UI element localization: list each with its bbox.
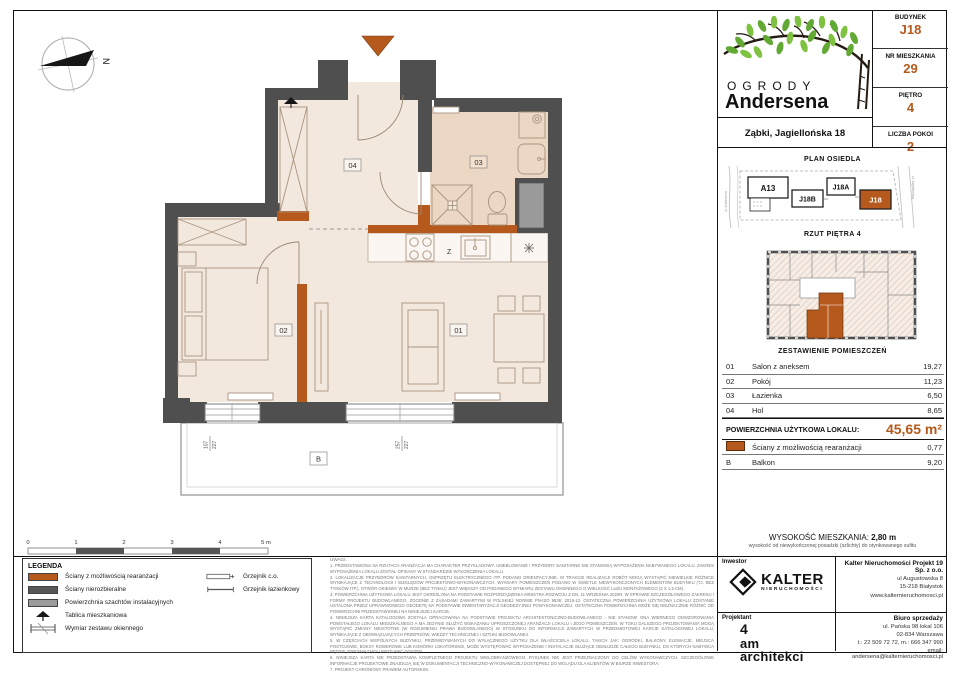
note-item: 6. NINIEJSZA KARTA NIE PRZEDSTAWIA KOMPL… [330,655,714,666]
legend-item: Ściany z możliwością rearanżacji [28,570,201,583]
site-building-a13-label: A13 [761,184,776,193]
rearrangeable-wall-swatch [28,573,58,581]
investor-company: Kalter Nieruchomości Projekt 19 Sp. z o.… [838,560,943,574]
floor-label: PIĘTRO [873,92,948,99]
radiator-bathroom-icon [206,583,236,596]
svg-text:227: 227 [404,440,410,449]
fixed-wall-swatch [28,586,58,594]
kalter-logo-icon [729,568,757,596]
window-room02 [205,404,260,421]
svg-text:0: 0 [26,540,29,546]
legend-item: Grzejnik c.o. [206,570,309,583]
logo-tree: OGRODY Andersena [720,16,870,112]
legend-item: Grzejnik łazienkowy [206,583,309,596]
apartment-number-value: 29 [873,61,948,76]
sales-office-phone: t.: 22 509 72 72, m.: 666 347 990 [838,640,943,646]
notes-title: UWAGI: [330,557,714,562]
note-item: 1. PRZEDSTAWIONA NA RZUTACH ARANŻACJA MA… [330,563,714,574]
table-row: 02 Pokój 11,23 [722,374,944,389]
shaft-area-swatch [28,599,58,607]
svg-text:4: 4 [218,540,222,546]
legend-title: LEGENDA [28,563,311,570]
room-label-bathroom: 03 [474,158,482,167]
street-right-label: ul. Jagiellońska [911,176,915,199]
sales-office-title: Biuro sprzedaży [838,615,943,622]
radiator-co-icon [206,570,236,583]
investor-section-label: Inwestor [722,559,835,565]
room-label-hall: 04 [348,161,356,170]
unit-info-column: BUDYNEK J18 NR MIESZKANIA 29 PIĘTRO 4 LI… [872,10,948,147]
note-item: 5. W CZĘŚCIACH WSPÓLNYCH BUDYNKU, PRZEWI… [330,638,714,655]
window-dim-icon [28,622,58,635]
site-building-j18b-label: J18B [799,197,816,204]
floor-plan-drawing: N [13,10,717,556]
svg-text:107: 107 [204,440,210,449]
note-item: 3. POWIERZCHNIA UŻYTKOWA LOKALU JEST OKR… [330,592,714,614]
kitchen-sink-label: Z [447,249,452,256]
site-plan-title: PLAN OSIEDLA [718,156,947,163]
investor-brand-sub: NIERUCHOMOŚCI [761,587,824,592]
compass-north-label: N [101,58,111,65]
investor-brand: KALTER [761,572,824,587]
catalog-card-page: N [0,0,960,678]
compass-icon: N [38,36,111,92]
sales-office-line: 02-834 Warszawa [838,632,943,638]
designer-cell: Projektant 4 am architekci [718,613,836,651]
rearrangeable-walls-row: Ściany z możliwością rearanżacji 0,77 [722,440,944,455]
svg-text:5 m: 5 m [261,540,271,546]
table-row: 04 Hol 8,65 [722,403,944,418]
rooms-table: 01 Salon z aneksem 19,27 02 Pokój 11,23 … [722,360,944,470]
apartment-number-label: NR MIESZKANIA [873,53,948,60]
investor-website: www.kalternieruchomosci.pl [838,593,943,599]
notes-block: UWAGI: 1. PRZEDSTAWIONA NA RZUTACH ARANŻ… [330,557,714,651]
sales-office-line: ul. Pańska 98 lokal 106 [838,624,943,630]
note-item: 7. PROJEKT CHRONIONY PRAWEM AUTORSKIM. [330,667,714,673]
legend-item: Tablica mieszkaniowa [28,609,201,622]
legend-item: Ściany nierozbieralne [28,583,201,596]
floor-value: 4 [873,100,948,115]
site-building-j18-label: J18 [869,196,882,205]
svg-text:257: 257 [396,440,402,449]
investor-cell: Inwestor KALTER NIERUCHOMOŚCI [718,557,836,612]
investor-address-line: ul Augustowska 8 [838,576,943,582]
designer-logo: 4 am architekci [740,622,835,664]
building-label: BUDYNEK [873,14,948,21]
investor-contact-cell: Kalter Nieruchomości Projekt 19 Sp. z o.… [838,557,943,612]
floor-overview-title: RZUT PIĘTRA 4 [718,231,947,238]
legend-item: Powierzchnia szachtów instalacyjnych [28,596,201,609]
scale-bar: 0 1 2 3 4 5 m [26,540,271,554]
note-item: 4. NINIEJSZA KARTA KATALOGOWA ZOSTAŁA OP… [330,615,714,637]
project-address: Ząbki, Jagiellońska 18 [745,128,845,139]
sales-office-cell: Biuro sprzedaży ul. Pańska 98 lokal 106 … [838,613,943,651]
svg-text:227: 227 [212,440,218,449]
height-label: WYSOKOŚĆ MIESZKANIA: [769,533,869,542]
room-label-bedroom: 02 [279,326,287,335]
svg-text:2: 2 [122,540,125,546]
balcony-label: B [316,455,321,464]
site-plan-map: ul. Andersena ul. Jagiellońska A13 J18B … [718,166,947,228]
rooms-table-title: ZESTAWIENIE POMIESZCZEŃ [718,348,947,355]
street-left-label: ul. Andersena [724,191,728,212]
apartment-height-block: WYSOKOŚĆ MIESZKANIA: 2,80 m wysokość od … [718,533,947,549]
legend-box: LEGENDA Ściany z możliwością rearanżacji… [22,558,312,653]
appliance-marker-icon [524,243,534,253]
floor-overview-thumbnail [718,242,947,344]
designer-section-label: Projektant [722,615,835,621]
section-divider-1 [718,147,947,148]
logo-line2: Andersena [725,91,829,112]
height-note: wysokość od niewykończonej posadzki (szl… [718,543,947,549]
table-row: 03 Łazienka 6,50 [722,389,944,404]
usable-area-value: 45,65 m² [886,421,944,437]
balcony-outline [181,423,563,495]
room-label-living: 01 [454,326,462,335]
balcony-row: B Balkon 9,20 [722,455,944,470]
height-value: 2,80 m [871,533,896,542]
entrance-marker-icon [362,36,394,56]
window-room01 [346,404,454,421]
installation-shaft [519,183,544,228]
kitchen-counter [368,233,548,262]
sales-office-email: email: andersena@kalternieruchomosci.pl [838,648,943,660]
apartment-board-icon [28,609,58,622]
svg-text:3: 3 [170,540,173,546]
note-item: 2. LOKALIZACJE PRZYBORÓW SANITARNYCH, OS… [330,575,714,592]
svg-text:1: 1 [74,540,77,546]
building-value: J18 [873,22,948,37]
usable-area-row: POWIERZCHNIA UŻYTKOWA LOKALU: 45,65 m² [722,418,944,440]
usable-area-label: POWIERZCHNIA UŻYTKOWA LOKALU: [722,425,859,434]
legend-item: Wymiar zestawu okiennego [28,622,201,635]
rearrangeable-wall-swatch [726,441,745,451]
project-address-cell: Ząbki, Jagiellońska 18 [718,117,872,148]
investor-address-line: 15-218 Białystok [838,584,943,590]
rooms-count-label: LICZBA POKOI [873,131,948,138]
table-row: 01 Salon z aneksem 19,27 [722,360,944,374]
site-building-j18a-label: J18A [833,185,850,192]
